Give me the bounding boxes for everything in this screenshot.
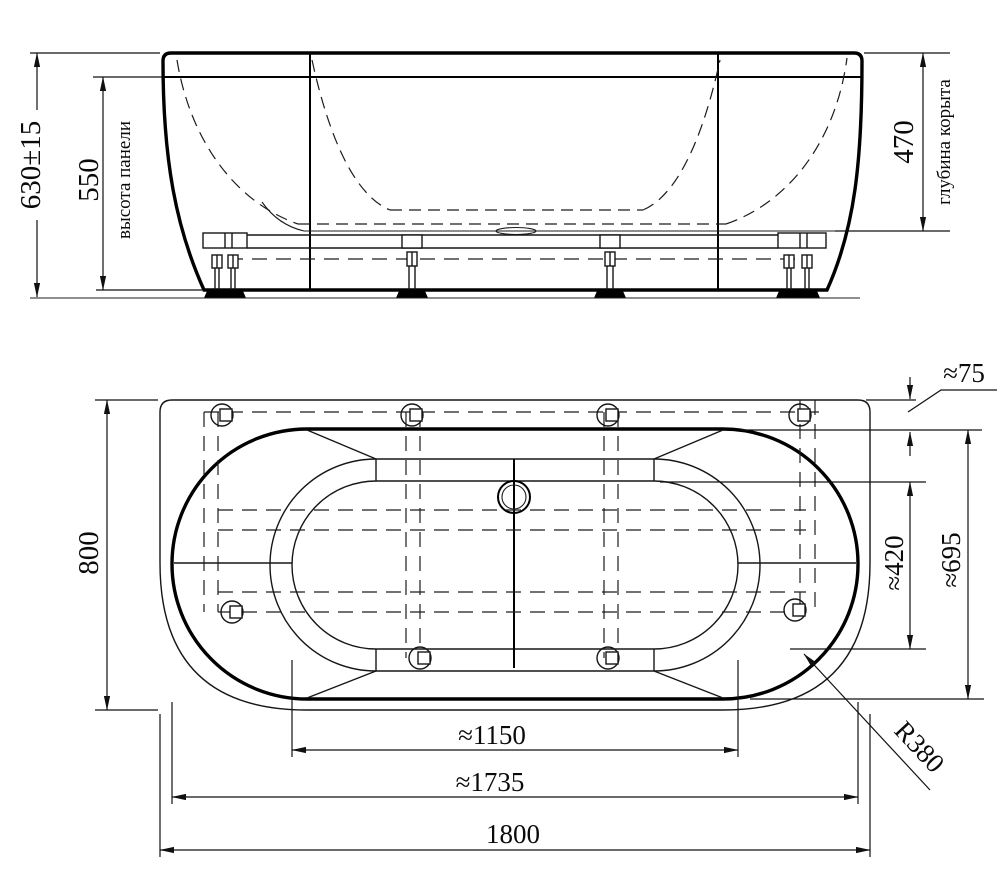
frame-foot: [401, 404, 423, 426]
bowl-profile-left-far: [312, 60, 390, 210]
bowl-profile-right-near: [726, 58, 847, 224]
support-foot-left: [203, 233, 247, 298]
dimension-rim-length: ≈1735: [172, 702, 858, 804]
rim-length-label: ≈1735: [456, 767, 525, 797]
panel-height-label: 550: [73, 158, 105, 202]
dimension-overall-width: 800: [73, 400, 158, 710]
rim-gap-label: ≈75: [943, 358, 985, 388]
bowl-depth-label: 470: [888, 120, 920, 164]
tub-outline: [163, 53, 862, 290]
total-height-label: 630±15: [15, 121, 47, 209]
frame-feet: [211, 404, 811, 669]
support-foot-right: [776, 233, 826, 298]
dimension-bottom-length: ≈1150: [292, 660, 738, 757]
drawing-sheet: 630±15 550 высота панели 470 глубина кор…: [0, 0, 1000, 869]
frame-foot: [597, 404, 619, 426]
bottom-length-label: ≈1150: [458, 720, 526, 750]
front-view: 630±15 550 высота панели 470 глубина кор…: [15, 53, 955, 298]
overall-length-label: 1800: [486, 819, 540, 849]
frame-foot: [211, 404, 233, 426]
frame-foot: [409, 647, 431, 669]
frame-foot: [784, 599, 806, 621]
panel-height-caption: высота панели: [114, 121, 135, 239]
rim-width-label: ≈695: [936, 532, 966, 587]
overall-width-label: 800: [73, 531, 105, 575]
plan-view: 800 ≈75 ≈420 ≈: [73, 358, 997, 857]
dimension-bottom-width: ≈420: [660, 482, 926, 649]
corner-radius-label: R380: [889, 715, 951, 778]
bowl-floor-line: [262, 202, 948, 231]
bottom-width-label: ≈420: [879, 535, 909, 590]
frame-foot: [597, 647, 619, 669]
bowl-depth-caption: глубина корыта: [934, 79, 955, 205]
bowl-profile-left-near: [177, 60, 298, 224]
dimension-panel-height: 550 высота панели: [73, 77, 202, 290]
dimension-rim-width: ≈695: [750, 430, 984, 699]
bowl-profile-right-far: [643, 60, 720, 210]
bathtub-technical-drawing: 630±15 550 высота панели 470 глубина кор…: [0, 0, 1000, 869]
dimension-corner-radius: R380: [804, 654, 951, 790]
